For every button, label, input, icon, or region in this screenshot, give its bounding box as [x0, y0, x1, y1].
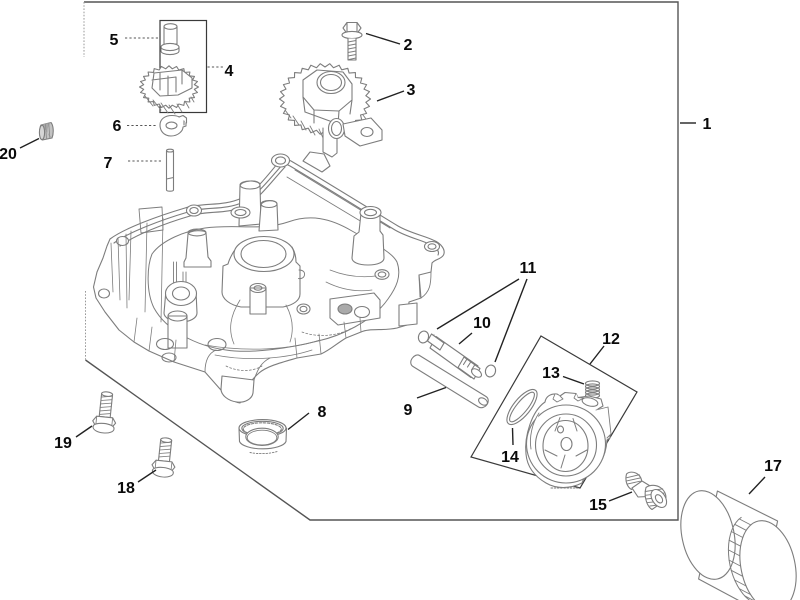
svg-text:4: 4	[225, 63, 234, 80]
svg-text:2: 2	[404, 37, 413, 54]
svg-text:12: 12	[602, 331, 620, 348]
svg-text:9: 9	[404, 402, 413, 419]
svg-text:3: 3	[407, 82, 416, 99]
svg-text:15: 15	[589, 497, 607, 514]
svg-text:1: 1	[703, 116, 712, 133]
svg-text:11: 11	[520, 260, 537, 277]
svg-text:19: 19	[54, 435, 72, 452]
svg-text:13: 13	[542, 365, 560, 382]
svg-text:14: 14	[501, 449, 519, 466]
svg-text:8: 8	[318, 404, 327, 421]
svg-text:17: 17	[764, 458, 782, 475]
svg-text:10: 10	[473, 315, 491, 332]
svg-text:20: 20	[0, 146, 17, 163]
svg-text:5: 5	[110, 32, 119, 49]
svg-text:7: 7	[104, 155, 113, 172]
svg-text:18: 18	[117, 480, 135, 497]
svg-text:6: 6	[113, 118, 122, 135]
